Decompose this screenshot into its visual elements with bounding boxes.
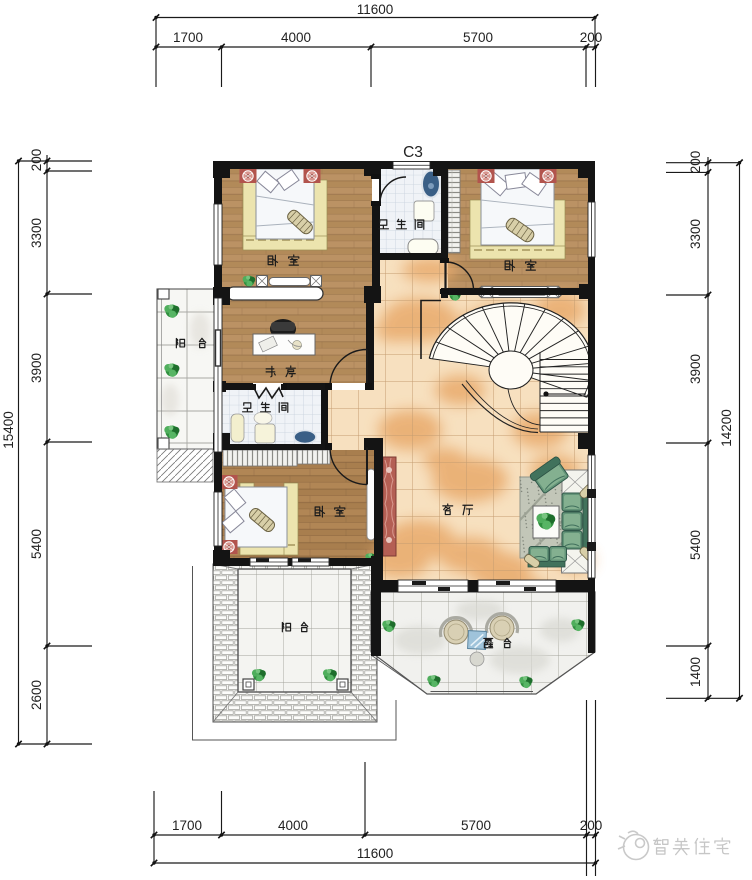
svg-text:200: 200 xyxy=(688,151,703,174)
svg-text:3900: 3900 xyxy=(29,353,44,383)
svg-text:5700: 5700 xyxy=(463,30,493,45)
svg-text:15400: 15400 xyxy=(1,411,16,449)
svg-text:200: 200 xyxy=(580,818,603,833)
svg-text:200: 200 xyxy=(580,30,603,45)
svg-text:11600: 11600 xyxy=(357,846,394,861)
svg-text:5400: 5400 xyxy=(688,530,703,560)
svg-text:C3: C3 xyxy=(403,144,423,161)
svg-text:11600: 11600 xyxy=(357,2,394,17)
svg-text:4000: 4000 xyxy=(281,30,311,45)
svg-text:5400: 5400 xyxy=(29,529,44,559)
svg-text:3300: 3300 xyxy=(688,219,703,249)
svg-text:4000: 4000 xyxy=(278,818,308,833)
svg-text:5700: 5700 xyxy=(461,818,491,833)
svg-text:200: 200 xyxy=(29,149,44,172)
svg-text:3900: 3900 xyxy=(688,354,703,384)
svg-text:1400: 1400 xyxy=(688,657,703,687)
svg-text:1700: 1700 xyxy=(172,818,202,833)
svg-text:1700: 1700 xyxy=(173,30,203,45)
svg-text:2600: 2600 xyxy=(29,680,44,710)
svg-text:3300: 3300 xyxy=(29,218,44,248)
svg-text:14200: 14200 xyxy=(719,409,734,447)
